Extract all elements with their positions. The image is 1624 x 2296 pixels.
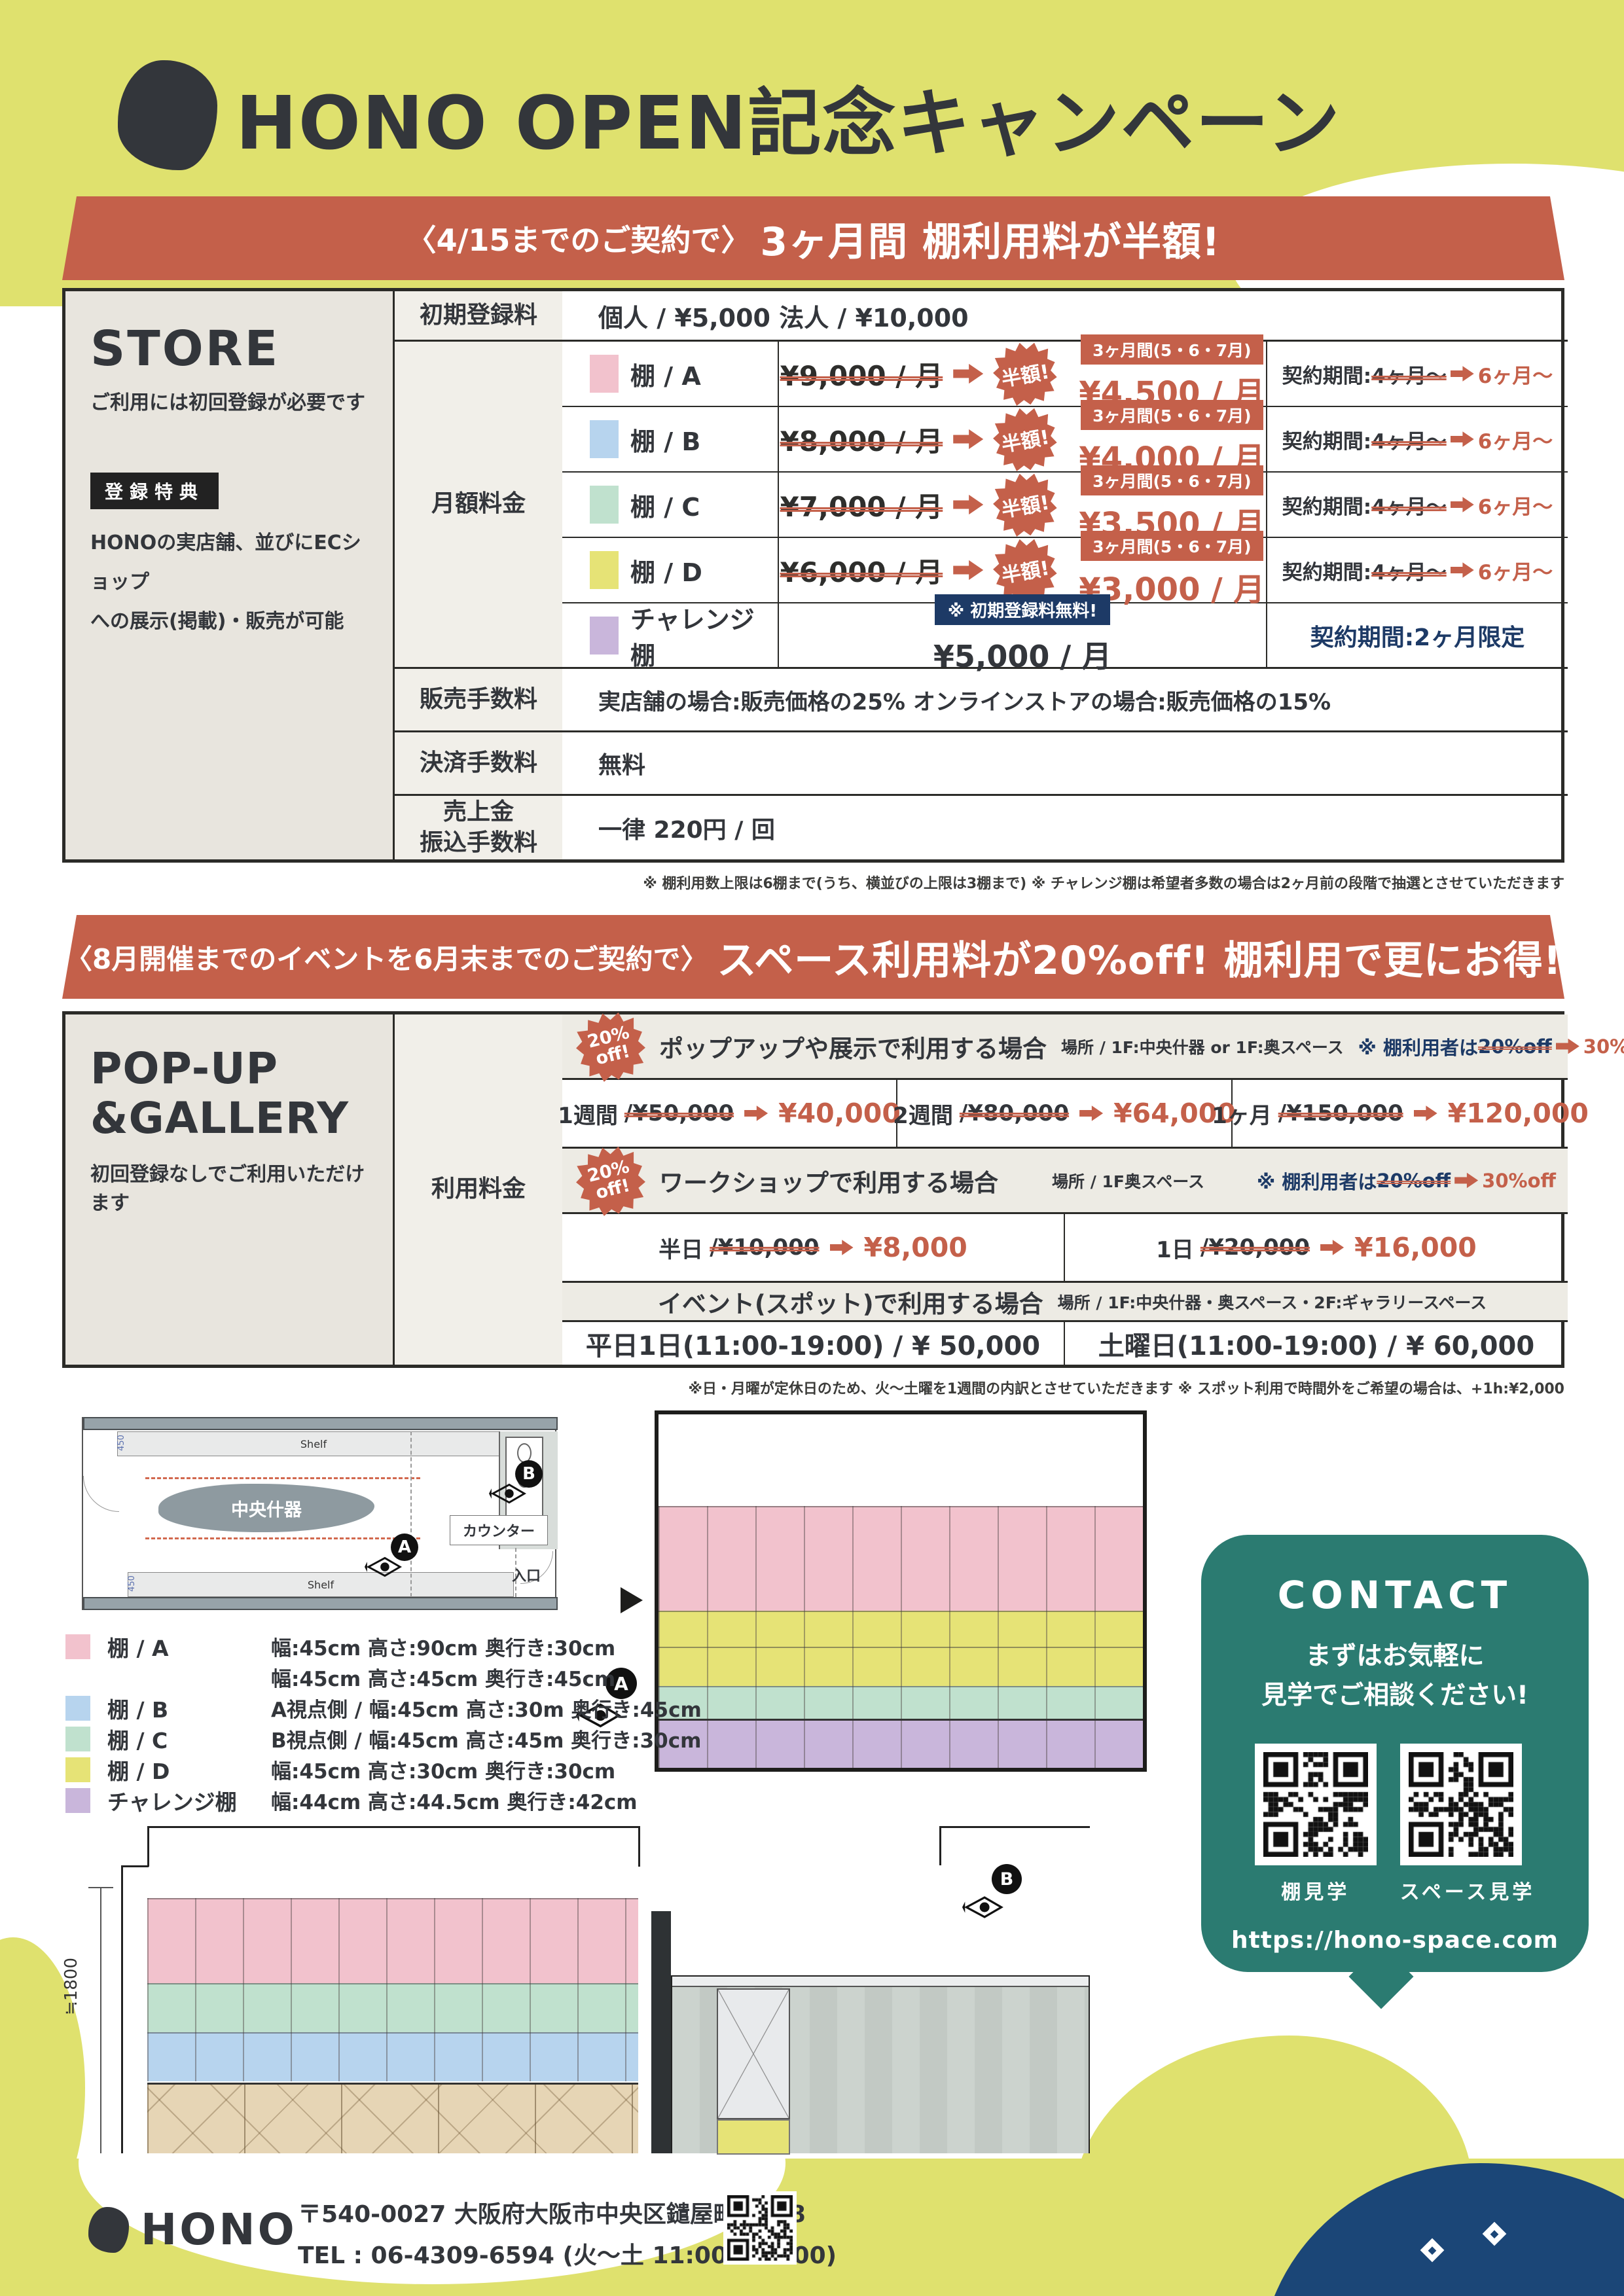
transfer-label-line1: 売上金 bbox=[443, 798, 514, 825]
popup-header-3: イベント(スポット)で利用する場合 場所 / 1F:中央什器・奥スペース・2F:… bbox=[562, 1283, 1568, 1322]
banner1-prefix: 〈4/15までのご契約で〉 bbox=[406, 217, 751, 260]
elevation-a-dim-line bbox=[100, 1888, 101, 2153]
initial-fee-value: 個人 / ¥5,000 法人 / ¥10,000 bbox=[562, 291, 1568, 342]
popup-title-line2: &GALLERY bbox=[90, 1093, 349, 1143]
price-new: ¥16,000 bbox=[1354, 1232, 1477, 1263]
shelf-row-b-term: 契約期間:4ヶ月〜6ヶ月〜 bbox=[1267, 407, 1568, 473]
shelf-b-old-price: ¥8,000 / 月 bbox=[780, 420, 943, 459]
floor-plan: Shelf 450 Shelf 450 中央什器 カウンター 入口 A B bbox=[82, 1417, 556, 1610]
viewpoint-b2-label: B bbox=[992, 1864, 1022, 1894]
price-label: 2週間 bbox=[893, 1098, 953, 1130]
term-label: 契約期間: bbox=[1282, 490, 1371, 520]
campaign-banner-1: 〈4/15までのご契約で〉 3ヶ月間 棚利用料が半額! bbox=[62, 196, 1564, 280]
contact-title: CONTACT bbox=[1201, 1573, 1589, 1617]
legend-challenge-dims: 幅:44cm 高さ:44.5cm 奥行き:42cm bbox=[271, 1785, 638, 1815]
wall-left-line bbox=[121, 1865, 123, 2153]
popup-header3-title: イベント(スポット)で利用する場合 bbox=[658, 1284, 1043, 1319]
banner2-main: スペース利用料が20%off! 棚利用で更にお得! bbox=[717, 929, 1561, 986]
half-price-badge: 半額! bbox=[989, 337, 1062, 410]
shelf-row-c-term: 契約期間:4ヶ月〜6ヶ月〜 bbox=[1267, 473, 1568, 538]
store-info-column: STORE ご利用には初回登録が必要です 登録特典 HONOの実店舗、並びにEC… bbox=[65, 291, 395, 859]
legend-row-c: 棚 / C B視点側 / 幅:45cm 高さ:45m 奥行き:30cm bbox=[65, 1723, 702, 1754]
shelf-c-old-price: ¥7,000 / 月 bbox=[780, 485, 943, 525]
sales-fee-value: 実店舗の場合:販売価格の25% オンラインストアの場合:販売価格の15% bbox=[562, 669, 1568, 732]
term-old: 4ヶ月〜 bbox=[1371, 425, 1447, 454]
wall-step-v bbox=[147, 1826, 149, 1867]
elevation-a-blue-band bbox=[147, 2032, 638, 2081]
shelf-c-period: 3ヶ月間(5・6・7月) bbox=[1081, 465, 1263, 495]
plan-center-fixture: 中央什器 bbox=[158, 1484, 374, 1532]
qr-shelf-tour bbox=[1255, 1744, 1377, 1865]
price-old: /¥50,000 bbox=[624, 1100, 734, 1126]
shelf-row-c-price: ¥7,000 / 月 半額! 3ヶ月間(5・6・7月) ¥3,500 / 月 bbox=[779, 473, 1267, 538]
wall-right-step bbox=[638, 1826, 640, 1867]
note-old: 20%off bbox=[1377, 1170, 1451, 1192]
shelf-a-label: 棚 / A bbox=[630, 356, 701, 392]
challenge-free-note: ※ 初期登録料無料! bbox=[935, 594, 1110, 625]
door bbox=[717, 1988, 790, 2119]
qr-shelf-tour-label: 棚見学 bbox=[1255, 1876, 1377, 1905]
arrow-icon bbox=[953, 493, 983, 516]
legend-d-swatch bbox=[65, 1757, 90, 1782]
legend-row-b: 棚 / B A視点側 / 幅:45cm 高さ:30m 奥行き:45cm bbox=[65, 1693, 702, 1723]
price-label: 1ヶ月 bbox=[1212, 1098, 1272, 1130]
arrow-icon bbox=[953, 362, 983, 386]
plan-dash-line-1 bbox=[410, 1431, 412, 1597]
legend-row-d: 棚 / D 幅:45cm 高さ:30cm 奥行き:30cm bbox=[65, 1754, 702, 1785]
arrow-icon bbox=[1451, 495, 1474, 514]
term-new: 6ヶ月〜 bbox=[1478, 490, 1553, 520]
transfer-fee-value: 一律 220円 / 回 bbox=[562, 796, 1568, 859]
legend-a-dims: 幅:45cm 高さ:90cm 奥行き:30cm bbox=[271, 1632, 615, 1661]
arrow-icon bbox=[1320, 1238, 1344, 1257]
viewpoint-b2-eye-icon bbox=[962, 1895, 1004, 1920]
lintel bbox=[672, 1977, 1089, 1987]
banner1-main: 3ヶ月間 棚利用料が半額! bbox=[760, 210, 1220, 267]
hono-logo-blob-icon bbox=[88, 2207, 129, 2253]
elevation-b bbox=[655, 1410, 1147, 1772]
shelf-row-a-price: ¥9,000 / 月 半額! 3ヶ月間(5・6・7月) ¥4,500 / 月 bbox=[779, 342, 1267, 407]
20off-badge: 20%off! bbox=[569, 1005, 652, 1087]
shelf-b-period: 3ヶ月間(5・6・7月) bbox=[1081, 400, 1263, 430]
elevation-arrow-icon bbox=[621, 1587, 643, 1613]
payment-fee-label: 決済手数料 bbox=[395, 732, 562, 796]
shelf-row-d-price: ¥6,000 / 月 半額! 3ヶ月間(5・6・7月) ¥3,000 / 月 bbox=[779, 538, 1267, 603]
half-price-badge: 半額! bbox=[989, 468, 1062, 541]
wall-far-right-top bbox=[939, 1826, 1090, 1828]
popup-header2-place: 場所 / 1F奥スペース bbox=[1052, 1169, 1204, 1193]
shelf-b-label: 棚 / B bbox=[630, 422, 700, 457]
legend-b-name: 棚 / B bbox=[107, 1693, 271, 1724]
initial-fee-label: 初期登録料 bbox=[395, 291, 562, 342]
legend-row-a2: 幅:45cm 高さ:45cm 奥行き:45cm bbox=[65, 1662, 702, 1693]
shelf-d-label: 棚 / D bbox=[630, 552, 702, 588]
legend-a-name: 棚 / A bbox=[107, 1631, 271, 1662]
legend-d-name: 棚 / D bbox=[107, 1754, 271, 1785]
arrow-icon bbox=[1414, 1104, 1437, 1122]
popup-header1-place: 場所 / 1F:中央什器 or 1F:奥スペース bbox=[1061, 1035, 1344, 1058]
price-1day: 1日/¥20,000¥16,000 bbox=[1065, 1214, 1568, 1283]
popup-title-line1: POP-UP bbox=[90, 1043, 278, 1094]
plan-shelf-bottom: Shelf bbox=[128, 1572, 514, 1597]
arrow-icon bbox=[1454, 1172, 1478, 1190]
half-price-badge: 半額! bbox=[989, 403, 1062, 475]
legend-a2-dims: 幅:45cm 高さ:45cm 奥行き:45cm bbox=[271, 1662, 615, 1692]
price-saturday: 土曜日(11:00-19:00) / ¥ 60,000 bbox=[1065, 1322, 1568, 1365]
transfer-label-line2: 振込手数料 bbox=[420, 829, 537, 856]
term-old: 4ヶ月〜 bbox=[1371, 556, 1447, 585]
legend-empty-swatch bbox=[65, 1665, 90, 1690]
price-old: /¥150,000 bbox=[1278, 1100, 1403, 1126]
elevation-a-pink-band bbox=[147, 1898, 638, 1983]
term-label: 契約期間: bbox=[1282, 556, 1371, 585]
legend-b-swatch bbox=[65, 1696, 90, 1721]
qr-space-tour-block: スペース見学 bbox=[1400, 1744, 1535, 1905]
plan-counter: カウンター bbox=[450, 1515, 548, 1545]
contact-url: https://hono-space.com bbox=[1201, 1927, 1589, 1954]
term-new: 6ヶ月〜 bbox=[1478, 359, 1553, 389]
term-label: 契約期間: bbox=[1282, 425, 1371, 454]
campaign-banner-2: 〈8月開催までのイベントを6月末までのご契約で〉 スペース利用料が20%off!… bbox=[62, 915, 1564, 999]
popup-header3-place: 場所 / 1F:中央什器・奥スペース・2F:ギャラリースペース bbox=[1058, 1290, 1487, 1314]
note-prefix: ※ 棚利用者は bbox=[1257, 1167, 1377, 1194]
elevation-b-purple-band bbox=[659, 1719, 1143, 1768]
price-new: ¥40,000 bbox=[778, 1098, 901, 1129]
term-old: 4ヶ月〜 bbox=[1371, 359, 1447, 389]
shelf-c-label: 棚 / C bbox=[630, 487, 700, 523]
footer-logo: HONO bbox=[88, 2204, 297, 2255]
contact-message-line2: 見学でご相談ください! bbox=[1261, 1681, 1528, 1710]
plan-bottom-wall bbox=[83, 1597, 558, 1610]
challenge-row-name: チャレンジ棚 bbox=[562, 603, 779, 669]
dim-tick-top bbox=[88, 1887, 113, 1888]
shelf-row-d-name: 棚 / D bbox=[562, 538, 779, 603]
sales-fee-label: 販売手数料 bbox=[395, 669, 562, 732]
popup-subtitle: 初回登録なしでご利用いただけます bbox=[90, 1158, 368, 1215]
legend-c-dims: B視点側 / 幅:45cm 高さ:45m 奥行き:30cm bbox=[271, 1724, 701, 1753]
note-new: 30%off bbox=[1583, 1035, 1624, 1058]
arrow-icon bbox=[1556, 1037, 1579, 1056]
plan-dim-450-top: 450 bbox=[117, 1435, 126, 1451]
elevation-a-cabinet-band bbox=[147, 2083, 638, 2153]
challenge-swatch bbox=[590, 617, 619, 655]
shelf-d-old-price: ¥6,000 / 月 bbox=[780, 550, 943, 590]
contact-message: まずはお気軽に 見学でご相談ください! bbox=[1201, 1637, 1589, 1716]
qr-space-tour bbox=[1400, 1744, 1522, 1865]
elevation-a: ≒1800 B bbox=[62, 1826, 1090, 2153]
popup-header2-note: ※ 棚利用者は20%off30%off bbox=[1257, 1167, 1556, 1194]
price-weekday: 平日1日(11:00-19:00) / ¥ 50,000 bbox=[562, 1322, 1065, 1365]
arrow-icon bbox=[1079, 1104, 1103, 1122]
qr-shelf-tour-block: 棚見学 bbox=[1255, 1744, 1377, 1905]
popup-header-1: 20%off! ポップアップや展示で利用する場合 場所 / 1F:中央什器 or… bbox=[562, 1014, 1568, 1080]
price-halfday: 半日/¥10,000¥8,000 bbox=[562, 1214, 1065, 1283]
wall-top-line bbox=[147, 1826, 640, 1828]
popup-table: POP-UP &GALLERY 初回登録なしでご利用いただけます 利用料金 20… bbox=[62, 1011, 1564, 1368]
price-old: /¥80,000 bbox=[960, 1100, 1069, 1126]
legend-row-challenge: チャレンジ棚 幅:44cm 高さ:44.5cm 奥行き:42cm bbox=[65, 1785, 702, 1816]
store-table: STORE ご利用には初回登録が必要です 登録特典 HONOの実店舗、並びにEC… bbox=[62, 288, 1564, 863]
viewpoint-a-eye-icon bbox=[365, 1556, 403, 1578]
term-new: 6ヶ月〜 bbox=[1478, 556, 1553, 585]
shelf-d-swatch bbox=[590, 551, 619, 589]
banner2-prefix: 〈8月開催までのイベントを6月末までのご契約で〉 bbox=[65, 937, 708, 977]
shelf-c-swatch bbox=[590, 486, 619, 524]
plan-left-door-arc bbox=[83, 1476, 119, 1512]
store-benefit-line1: HONOの実店舗、並びにECショップ bbox=[90, 531, 361, 594]
elevation-b-yellow-band-2 bbox=[659, 1647, 1143, 1686]
elevation-a-dim-1800: ≒1800 bbox=[62, 1958, 81, 2015]
viewpoint-a-label: A bbox=[391, 1534, 418, 1561]
payment-fee-value: 無料 bbox=[562, 732, 1568, 796]
arrow-icon bbox=[1451, 365, 1474, 383]
shelf-row-a-name: 棚 / A bbox=[562, 342, 779, 407]
price-new: ¥120,000 bbox=[1448, 1098, 1589, 1129]
popup-header1-title: ポップアップや展示で利用する場合 bbox=[659, 1029, 1047, 1064]
note-old: 20%off bbox=[1478, 1035, 1552, 1058]
store-benefit-line2: への展示(掲載)・販売が可能 bbox=[90, 610, 344, 633]
flyer-page: HONO OPEN記念キャンペーン 〈4/15までのご契約で〉 3ヶ月間 棚利用… bbox=[0, 0, 1624, 2296]
arrow-icon bbox=[830, 1238, 854, 1257]
price-1week: 1週間/¥50,000¥40,000 bbox=[562, 1080, 897, 1149]
dark-post bbox=[651, 1911, 671, 2153]
arrow-icon bbox=[744, 1104, 768, 1122]
elevation-a-green-band bbox=[147, 1983, 638, 2032]
monthly-fee-label: 月額料金 bbox=[395, 342, 562, 669]
store-benefit-text: HONOの実店舗、並びにECショップ への展示(掲載)・販売が可能 bbox=[90, 524, 368, 641]
viewpoint-b-label: B bbox=[515, 1460, 543, 1488]
shelf-d-period: 3ヶ月間(5・6・7月) bbox=[1081, 531, 1263, 561]
shelf-legend: 棚 / A 幅:45cm 高さ:90cm 奥行き:30cm 幅:45cm 高さ:… bbox=[65, 1631, 702, 1816]
contact-panel: CONTACT まずはお気軽に 見学でご相談ください! 棚見学 スペース見学 h… bbox=[1201, 1535, 1589, 1972]
plan-top-wall bbox=[83, 1417, 558, 1430]
price-label: 1日 bbox=[1156, 1232, 1194, 1264]
legend-challenge-name: チャレンジ棚 bbox=[107, 1785, 271, 1816]
viewpoint-b-eye-icon bbox=[489, 1482, 527, 1505]
popup-header-2: 20%off! ワークショップで利用する場合 場所 / 1F奥スペース ※ 棚利… bbox=[562, 1149, 1568, 1214]
shelf-b-swatch bbox=[590, 420, 619, 458]
note-prefix: ※ 棚利用者は bbox=[1358, 1033, 1478, 1060]
half-price-badge-text: 半額! bbox=[999, 486, 1051, 523]
price-old: /¥20,000 bbox=[1200, 1234, 1310, 1261]
wall-step-h bbox=[121, 1865, 149, 1867]
plan-red-dash-top bbox=[145, 1477, 420, 1479]
plan-red-dash-bottom bbox=[145, 1537, 420, 1539]
shelf-row-b-name: 棚 / B bbox=[562, 407, 779, 473]
price-label: 1週間 bbox=[558, 1098, 618, 1130]
term-new: 6ヶ月〜 bbox=[1478, 425, 1553, 454]
half-price-badge-text: 半額! bbox=[999, 421, 1051, 457]
half-price-badge-text: 半額! bbox=[999, 552, 1051, 588]
registration-benefit-badge: 登録特典 bbox=[90, 473, 219, 509]
price-1month: 1ヶ月/¥150,000¥120,000 bbox=[1233, 1080, 1568, 1149]
plan-shelf-top: Shelf bbox=[117, 1431, 510, 1456]
popup-footnote: ※日・月曜が定休日のため、火〜土曜を1週間の内訳とさせていただきます ※ スポッ… bbox=[62, 1377, 1564, 1398]
usage-fee-label: 利用料金 bbox=[395, 1014, 562, 1365]
contact-message-line1: まずはお気軽に bbox=[1305, 1641, 1484, 1671]
arrow-icon bbox=[1451, 561, 1474, 579]
legend-c-name: 棚 / C bbox=[107, 1723, 271, 1755]
elevation-b-green-band bbox=[659, 1686, 1143, 1719]
concrete-wall bbox=[671, 1975, 1090, 2153]
plan-entrance-label: 入口 bbox=[512, 1564, 541, 1585]
store-title: STORE bbox=[90, 321, 368, 377]
popup-header1-note: ※ 棚利用者は20%off30%off bbox=[1358, 1033, 1624, 1060]
popup-header2-title: ワークショップで利用する場合 bbox=[659, 1163, 998, 1198]
challenge-row-price: ※ 初期登録料無料! ¥5,000 / 月 bbox=[779, 603, 1267, 669]
hono-logo-blob-icon bbox=[118, 60, 217, 170]
elevation-b-pink-band bbox=[659, 1506, 1143, 1611]
price-label: 半日 bbox=[659, 1232, 703, 1264]
arrow-icon bbox=[1451, 430, 1474, 448]
page-title: HONO OPEN記念キャンペーン bbox=[236, 64, 1341, 170]
popup-title: POP-UP &GALLERY bbox=[90, 1044, 368, 1143]
door-yellow-mat bbox=[717, 2119, 790, 2155]
challenge-label: チャレンジ棚 bbox=[630, 600, 778, 672]
arrow-icon bbox=[953, 558, 983, 582]
price-2week: 2週間/¥80,000¥64,000 bbox=[897, 1080, 1233, 1149]
20off-badge: 20%off! bbox=[569, 1139, 652, 1221]
term-label: 契約期間: bbox=[1282, 359, 1371, 389]
legend-a-swatch bbox=[65, 1634, 90, 1659]
shelf-row-c-name: 棚 / C bbox=[562, 473, 779, 538]
qr-space-tour-label: スペース見学 bbox=[1400, 1876, 1535, 1905]
footer-brand: HONO bbox=[141, 2204, 297, 2255]
shelf-a-old-price: ¥9,000 / 月 bbox=[780, 354, 943, 394]
price-old: /¥10,000 bbox=[710, 1234, 819, 1261]
note-new: 30%off bbox=[1482, 1170, 1556, 1192]
legend-c-swatch bbox=[65, 1727, 90, 1751]
shelf-a-period: 3ヶ月間(5・6・7月) bbox=[1081, 334, 1263, 365]
store-subtitle: ご利用には初回登録が必要です bbox=[90, 386, 368, 415]
challenge-row-term: 契約期間:2ヶ月限定 bbox=[1267, 603, 1568, 669]
term-old: 4ヶ月〜 bbox=[1371, 490, 1447, 520]
transfer-fee-label: 売上金振込手数料 bbox=[395, 796, 562, 859]
footer-qr bbox=[723, 2191, 797, 2265]
store-footnote: ※ 棚利用数上限は6棚まで(うち、横並びの上限は3棚まで) ※ チャレンジ棚は希… bbox=[62, 872, 1564, 893]
wall-far-right-step bbox=[939, 1826, 941, 1865]
legend-b-dims: A視点側 / 幅:45cm 高さ:30m 奥行き:45cm bbox=[271, 1693, 702, 1723]
elevation-b-yellow-band-1 bbox=[659, 1611, 1143, 1647]
legend-row-a: 棚 / A 幅:45cm 高さ:90cm 奥行き:30cm bbox=[65, 1631, 702, 1662]
shelf-row-d-term: 契約期間:4ヶ月〜6ヶ月〜 bbox=[1267, 538, 1568, 603]
legend-d-dims: 幅:45cm 高さ:30cm 奥行き:30cm bbox=[271, 1755, 615, 1784]
popup-info-column: POP-UP &GALLERY 初回登録なしでご利用いただけます bbox=[65, 1014, 395, 1365]
mascot-eye-icon bbox=[1483, 2222, 1507, 2246]
half-price-badge-text: 半額! bbox=[999, 355, 1051, 392]
shelf-row-a-term: 契約期間:4ヶ月〜6ヶ月〜 bbox=[1267, 342, 1568, 407]
contact-qr-row: 棚見学 スペース見学 bbox=[1201, 1744, 1589, 1905]
shelf-row-b-price: ¥8,000 / 月 半額! 3ヶ月間(5・6・7月) ¥4,000 / 月 bbox=[779, 407, 1267, 473]
plan-dim-450-bottom: 450 bbox=[127, 1575, 137, 1592]
price-new: ¥8,000 bbox=[864, 1232, 967, 1263]
shelf-a-swatch bbox=[590, 355, 619, 393]
mascot-eye-icon bbox=[1420, 2238, 1445, 2263]
arrow-icon bbox=[953, 427, 983, 451]
legend-challenge-swatch bbox=[65, 1788, 90, 1813]
